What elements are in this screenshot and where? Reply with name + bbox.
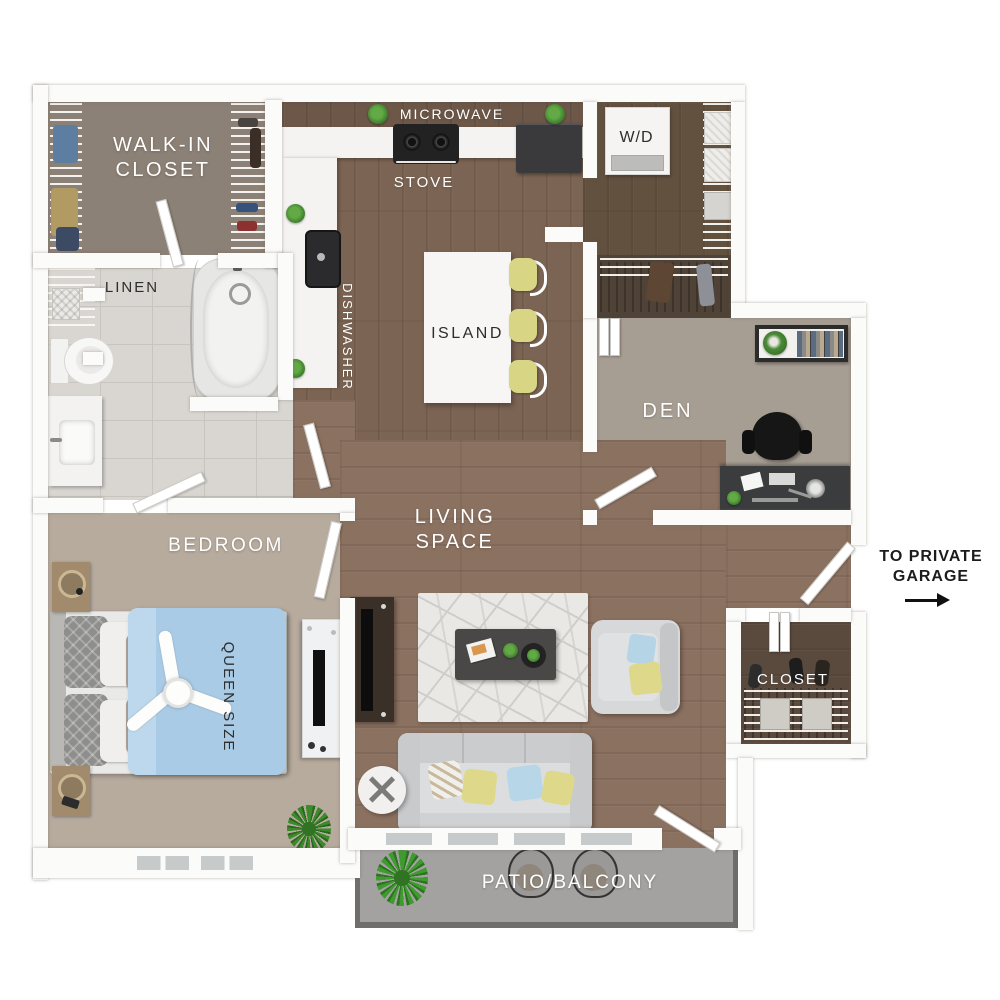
- bar-stool-2: [509, 309, 537, 342]
- vanity-sink: [59, 420, 95, 465]
- bed-duvet-fold: [128, 608, 156, 775]
- wall-rclst-bottom: [726, 744, 866, 758]
- shoes-row-3: [237, 221, 257, 231]
- wall-left: [33, 85, 48, 880]
- wall-rclst-top-left: [726, 608, 745, 622]
- armchair-pillow-yellow: [628, 661, 663, 696]
- wall-kitchen-walkin: [265, 100, 282, 268]
- hanging-clothes-navy: [56, 227, 79, 251]
- laundry-basket-3: [704, 192, 732, 220]
- faucet: [50, 438, 62, 442]
- shower-curtain: [190, 260, 208, 398]
- nightstand-top-bottle: [76, 588, 83, 595]
- wall-den-bottom-left: [583, 510, 597, 525]
- wall-kitchen-laundry: [583, 102, 597, 178]
- floor-plan: WALK-IN CLOSET LINEN MICROWAVE STOVE DIS…: [0, 0, 1000, 1000]
- wall-den-left: [583, 318, 597, 452]
- wall-under-tub: [190, 397, 278, 411]
- living-window-pane-3: [514, 833, 565, 845]
- tv-speaker-dot-2: [381, 712, 386, 717]
- dresser-item-2: [320, 746, 326, 752]
- den-closet-door-panel-2: [610, 318, 620, 356]
- hanging-clothes-blue: [53, 125, 78, 163]
- wall-den-bottom: [653, 510, 851, 525]
- wall-top: [33, 85, 745, 102]
- wall-right-upper-block: [731, 102, 745, 308]
- desk-plant: [727, 491, 741, 505]
- counter-plant-2: [545, 104, 565, 124]
- right-closet-door-panel-2: [780, 612, 790, 652]
- shoes-row-1: [238, 118, 258, 127]
- garage-arrow-icon: [905, 599, 939, 602]
- patio-label: PATIO/BALCONY: [467, 871, 673, 895]
- wall-rclst-left: [726, 622, 741, 744]
- wall-bedroom-top-right: [168, 498, 355, 513]
- sofa-back: [402, 733, 588, 763]
- bedroom-label: BEDROOM: [158, 534, 294, 558]
- bedroom-window-2: [197, 852, 257, 874]
- coffee-table-plant: [503, 643, 518, 658]
- bar-stool-3: [509, 360, 537, 393]
- patio-plant: [376, 850, 428, 906]
- hanging-bag: [250, 128, 261, 168]
- washer-dryer-door: [611, 155, 664, 171]
- wall-bedroom-right-stub: [340, 513, 355, 521]
- bowl-greens: [527, 649, 540, 662]
- sofa-pillow-yellow-1: [461, 768, 497, 805]
- den-closet-door-panel-1: [599, 318, 609, 356]
- laundry-basket-1: [704, 112, 732, 144]
- garage-note-label: TO PRIVATE GARAGE: [872, 547, 990, 587]
- tv-screen: [361, 609, 373, 711]
- counter-plant-1: [368, 104, 388, 124]
- shoes-row-2: [236, 203, 258, 212]
- right-closet-door-panel-1: [769, 612, 779, 652]
- armchair-pillow-blue: [626, 633, 657, 665]
- counter-plant-3: [286, 204, 305, 223]
- washer-dryer-label: W/D: [605, 128, 668, 148]
- dresser-knob-1: [307, 626, 312, 631]
- wall-tub-right: [278, 253, 293, 400]
- refrigerator: [516, 123, 582, 173]
- closet-box-1: [760, 698, 790, 730]
- living-window-pane-2: [448, 833, 498, 845]
- living-space-label: LIVING SPACE: [390, 505, 520, 555]
- living-window-pane-1: [386, 833, 432, 845]
- fan-hub: [163, 678, 193, 708]
- office-chair-arm-left: [742, 430, 755, 454]
- desk-paper-2: [769, 473, 795, 485]
- stove-handle: [396, 161, 456, 163]
- bedroom-tv: [313, 650, 325, 726]
- dresser-knob-2: [331, 630, 336, 635]
- wall-den-right-upper: [851, 318, 866, 545]
- desk-keyboard: [752, 498, 798, 502]
- tv-speaker-dot-1: [381, 604, 386, 609]
- wall-walkin-bottom-right: [218, 253, 282, 268]
- sofa-pillow-blue: [506, 764, 544, 802]
- sofa-pillow-yellow-2: [540, 770, 575, 807]
- microwave-label: MICROWAVE: [388, 106, 516, 124]
- stove-label: STOVE: [388, 174, 460, 193]
- wall-hall-stub: [545, 227, 583, 242]
- linen-basket: [52, 288, 80, 320]
- laundry-basket-2: [704, 148, 732, 182]
- dresser-item-1: [308, 742, 315, 749]
- tub-faucet-ring: [229, 283, 251, 305]
- office-chair: [752, 412, 802, 460]
- wall-bedroom-top-left: [33, 498, 103, 513]
- wall-rclst-top-right: [800, 608, 851, 622]
- walk-in-closet-label: WALK-IN CLOSET: [93, 133, 233, 183]
- den-shelf-books: [797, 331, 843, 357]
- queen-size-label: QUEEN SIZE: [218, 637, 237, 757]
- armchair-back: [660, 623, 678, 711]
- wall-bedroom-right: [340, 598, 355, 863]
- den-label: DEN: [620, 399, 716, 424]
- island-label: ISLAND: [424, 324, 511, 344]
- wall-den-top: [731, 303, 866, 318]
- wall-laundry-denclst: [583, 242, 597, 318]
- den-shelf-plant: [763, 331, 787, 355]
- dishwasher-label: DISHWASHER: [339, 283, 355, 391]
- living-window-pane-4: [581, 833, 632, 845]
- closet-label: CLOSET: [750, 671, 836, 690]
- linen-label: LINEN: [100, 279, 164, 298]
- stove-burner-right: [432, 133, 450, 151]
- bedroom-window-1: [133, 852, 193, 874]
- wall-linen-stub-2: [83, 352, 103, 365]
- dishwasher-knob: [317, 253, 325, 261]
- office-chair-arm-right: [799, 430, 812, 454]
- bar-stool-1: [509, 258, 537, 291]
- wall-walkin-bottom-left: [33, 253, 160, 268]
- bedroom-plant: [287, 805, 331, 853]
- stove-burner-left: [403, 133, 421, 151]
- wall-den-right-lower: [851, 612, 866, 758]
- garage-arrow-head-icon: [937, 593, 950, 607]
- closet-box-2: [802, 698, 832, 730]
- sofa-pillow-striped: [427, 759, 465, 800]
